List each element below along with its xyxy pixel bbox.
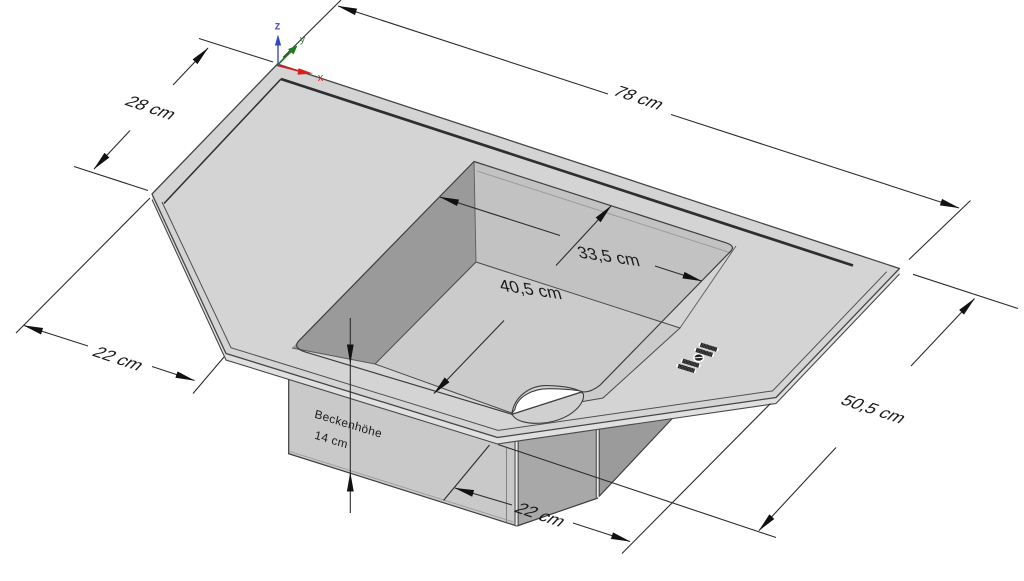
svg-text:x: x <box>318 72 324 84</box>
svg-text:y: y <box>300 34 306 46</box>
svg-text:z: z <box>275 21 281 33</box>
